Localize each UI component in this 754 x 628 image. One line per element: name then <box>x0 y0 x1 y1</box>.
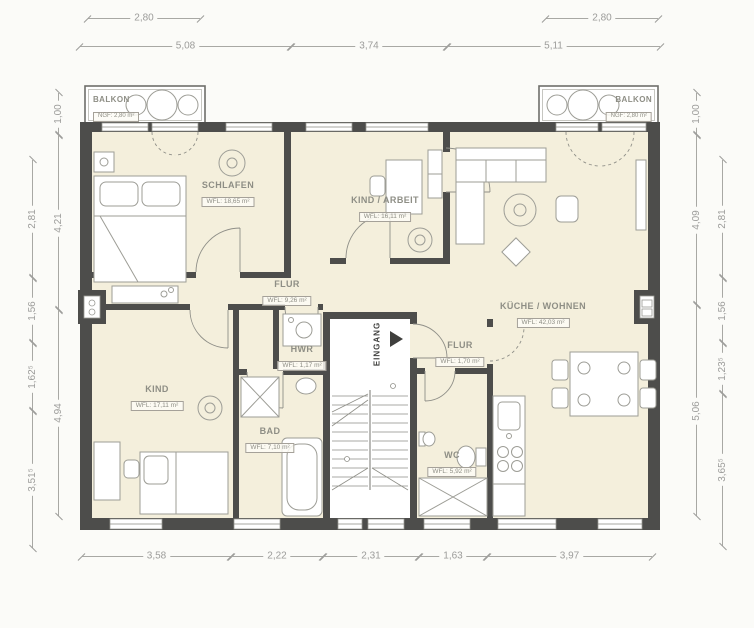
dimension-right-outer-1: 2,81 <box>722 160 723 278</box>
room-area: WFL: 16,11 m² <box>359 212 412 222</box>
room-area: WFL: 5,92 m² <box>427 467 476 477</box>
dimension-label: 3,97 <box>556 552 583 562</box>
entrance-arrow-icon <box>390 331 403 347</box>
dimension-label: 1,00 <box>54 100 64 127</box>
room-label-kind-arbeit: KIND / ARBEIT WFL: 16,11 m² <box>351 195 419 223</box>
dimension-label: 1,56 <box>28 297 38 324</box>
room-area: WFL: 7,10 m² <box>245 443 294 453</box>
balcony-label-left: BALKON NGF: 2,80 m² <box>93 95 139 122</box>
dimension-label: 3,65⁵ <box>718 454 728 486</box>
room-label-flur: FLUR WFL: 9,26 m² <box>262 279 311 307</box>
dimension-top-balkon-left: 2,80 <box>88 18 200 19</box>
dimension-label: 3,74 <box>355 42 382 52</box>
room-name: HWR <box>277 344 326 354</box>
room-name: KÜCHE / WOHNEN <box>500 301 586 311</box>
balcony-table-icon <box>147 90 177 120</box>
dimension-label: 5,11 <box>540 42 567 52</box>
room-label-hwr: HWR WFL: 1,17 m² <box>277 344 326 372</box>
dimension-label: 4,21 <box>54 209 64 236</box>
balcony-name: BALKON <box>93 95 139 104</box>
dimension-right-inner-3: 5,06 <box>696 305 697 516</box>
dimension-left-outer-4: 3,51⁵ <box>32 411 33 548</box>
room-label-schlafen: SCHLAFEN WFL: 18,65 m² <box>202 180 255 208</box>
entrance-label: EINGANG <box>368 316 386 372</box>
room-area: WFL: 1,17 m² <box>277 361 326 371</box>
room-name: FLUR <box>435 340 484 350</box>
wall-service-box-left <box>78 290 106 324</box>
dimension-label: 1,62⁵ <box>28 361 38 393</box>
shelf-icon <box>636 160 646 230</box>
armchair-icon <box>556 196 578 222</box>
wall-service-box-right <box>634 290 660 324</box>
dimension-label: 1,56 <box>718 297 728 324</box>
room-name: FLUR <box>262 279 311 289</box>
washer-icon <box>283 314 321 346</box>
dimension-left-outer-3: 1,62⁵ <box>32 343 33 411</box>
dimension-bottom-5: 3,97 <box>487 556 652 557</box>
room-area: WFL: 9,26 m² <box>262 296 311 306</box>
balcony-chair-icon <box>547 95 567 115</box>
balcony-area: NGF: 2,80 m² <box>606 112 652 122</box>
dimension-top-2: 3,74 <box>291 46 447 47</box>
dimension-label: 4,09 <box>692 206 702 233</box>
room-label-wc: WC WFL: 5,92 m² <box>427 450 476 478</box>
room-name: KIND <box>131 384 184 394</box>
room-name: SCHLAFEN <box>202 180 255 190</box>
room-area: WFL: 42,03 m² <box>517 318 570 328</box>
dimension-label: 2,22 <box>263 552 290 562</box>
bed-single-icon <box>140 452 228 514</box>
dimension-top-1: 5,08 <box>80 46 291 47</box>
dimension-left-outer-1: 2,81 <box>32 160 33 278</box>
dimension-label: 2,81 <box>718 205 728 232</box>
dimension-label: 5,06 <box>692 397 702 424</box>
balcony-name: BALKON <box>606 95 652 104</box>
sink-icon <box>296 378 316 394</box>
bed-double-icon <box>94 176 186 282</box>
room-area: WFL: 17,11 m² <box>131 401 184 411</box>
room-area: WFL: 1,70 m² <box>435 357 484 367</box>
floorplan-canvas: 2,80 2,80 5,08 3,74 5,11 3,58 2,22 2,31 … <box>0 0 754 628</box>
dimension-label: 2,80 <box>588 14 615 24</box>
room-label-kueche-wohnen: KÜCHE / WOHNEN WFL: 42,03 m² <box>500 301 586 329</box>
room-area: WFL: 18,65 m² <box>202 197 255 207</box>
room-name: KIND / ARBEIT <box>351 195 419 205</box>
sink-icon <box>419 432 435 446</box>
dimension-right-inner-2: 4,09 <box>696 135 697 305</box>
shower-icon <box>419 478 487 516</box>
dimension-left-inner-3: 4,94 <box>58 310 59 516</box>
dimension-bottom-2: 2,22 <box>231 556 323 557</box>
dimension-top-3: 5,11 <box>447 46 660 47</box>
dimension-label: 2,31 <box>357 552 384 562</box>
dimension-label: 1,63 <box>439 552 466 562</box>
dimension-label: 3,51⁵ <box>28 464 38 496</box>
room-label-kind: KIND WFL: 17,11 m² <box>131 384 184 412</box>
dimension-left-inner-2: 4,21 <box>58 135 59 310</box>
room-label-bad: BAD WFL: 7,10 m² <box>245 426 294 454</box>
dimension-right-outer-4: 3,65⁵ <box>722 394 723 546</box>
dimension-top-balkon-right: 2,80 <box>546 18 658 19</box>
dimension-label: 1,23⁵ <box>718 353 728 385</box>
shower-icon <box>241 377 279 417</box>
room-label-flur-klein: FLUR WFL: 1,70 m² <box>435 340 484 368</box>
balcony-label-right: BALKON NGF: 2,80 m² <box>606 95 652 122</box>
dimension-bottom-3: 2,31 <box>323 556 419 557</box>
dimension-left-outer-2: 1,56 <box>32 278 33 343</box>
dimension-label: 5,08 <box>172 42 199 52</box>
balcony-table-icon <box>568 90 598 120</box>
dimension-label: 2,81 <box>28 205 38 232</box>
windows-top <box>102 123 646 131</box>
dimension-label: 2,80 <box>130 14 157 24</box>
shelf-icon <box>428 150 442 198</box>
balcony-chair-icon <box>178 95 198 115</box>
dimension-right-outer-3: 1,23⁵ <box>722 343 723 394</box>
dimension-right-outer-2: 1,56 <box>722 278 723 343</box>
dimension-bottom-4: 1,63 <box>419 556 487 557</box>
dimension-right-inner-1: 1,00 <box>696 93 697 135</box>
dimension-bottom-1: 3,58 <box>82 556 231 557</box>
balcony-area: NGF: 2,80 m² <box>93 112 139 122</box>
dimension-label: 1,00 <box>692 100 702 127</box>
kitchen-counter-icon <box>493 396 525 516</box>
entrance-text: EINGANG <box>373 322 382 366</box>
dimension-label: 4,94 <box>54 399 64 426</box>
room-name: WC <box>427 450 476 460</box>
dimension-label: 3,58 <box>143 552 170 562</box>
dimension-left-inner-1: 1,00 <box>58 93 59 135</box>
sideboard-icon <box>112 286 178 303</box>
nightstand-icon <box>94 152 114 172</box>
room-name: BAD <box>245 426 294 436</box>
